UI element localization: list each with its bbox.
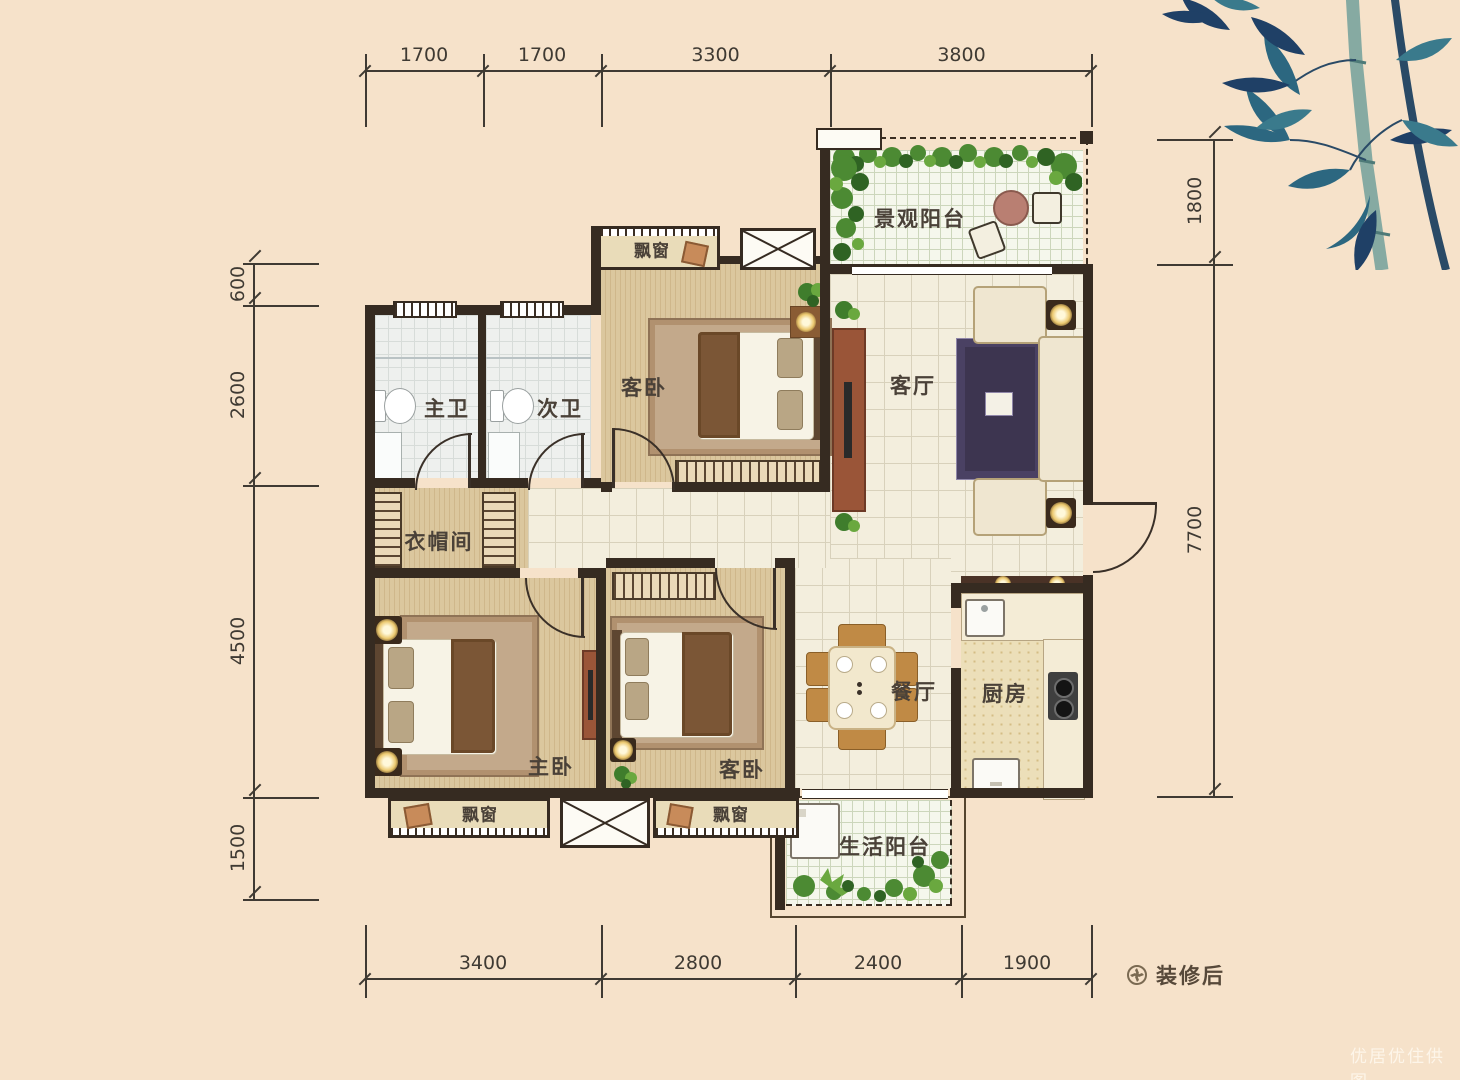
wall [365, 788, 800, 798]
balcony-railing [880, 137, 1086, 139]
room-label-bay-guest: 飘窗 [713, 801, 749, 826]
wall [365, 305, 375, 798]
floor-lamp [1046, 498, 1076, 528]
compass-icon [1126, 964, 1148, 986]
balcony-pillar [816, 128, 882, 150]
wall [672, 482, 830, 492]
dim-tick [1157, 139, 1233, 141]
entry-door-arc [1093, 505, 1157, 573]
room-label-dining: 餐厅 [891, 676, 937, 706]
room-label-bay-top: 飘窗 [634, 237, 670, 262]
dim-tick [1157, 264, 1233, 266]
wall [785, 558, 795, 798]
bamboo-painting [1140, 0, 1460, 270]
dim-line-top: 1700 1700 3300 3800 [365, 70, 1093, 72]
floor-plan: 景观阳台 主卫 次卫 客卧 客厅 衣帽间 主卧 客卧 餐厅 厨房 飘窗 飘窗 飘… [0, 0, 1460, 1080]
armchair [973, 478, 1047, 536]
dim-value: 1800 [1184, 177, 1206, 225]
dim-line-right: 1800 7700 [1213, 139, 1215, 798]
dim-value: 3800 [830, 44, 1093, 66]
room-label-view-balcony: 景观阳台 [874, 203, 966, 233]
bath-window [500, 301, 564, 318]
wall [365, 568, 520, 578]
shower-glass [375, 357, 478, 359]
watermark: 优居优住供图 [1350, 1042, 1460, 1080]
bed-guest-top [655, 330, 820, 440]
legend-label: 装修后 [1156, 960, 1225, 990]
shower-tray [488, 432, 520, 480]
wall [951, 583, 1083, 593]
room-label-second-bath: 次卫 [537, 393, 583, 423]
dim-line-left: 600 2600 4500 1500 [253, 263, 255, 901]
wall [601, 482, 612, 492]
dim-value: 1500 [227, 824, 249, 872]
dim-value: 3400 [365, 952, 601, 974]
life-balcony-railing [950, 800, 952, 904]
wall [1083, 264, 1093, 505]
dim-tick [243, 305, 319, 307]
wall [951, 583, 961, 608]
tv-console [832, 328, 866, 512]
nightstand-lamp [372, 616, 402, 644]
dim-value: 1700 [365, 44, 483, 66]
dining-table [828, 646, 896, 730]
dim-tick [243, 485, 319, 487]
dim-value: 2600 [227, 371, 249, 419]
railing-post [1080, 131, 1093, 144]
balcony-railing [1086, 139, 1088, 264]
shower-glass [486, 357, 591, 359]
ac-platform [560, 798, 650, 848]
dim-tick [243, 263, 319, 265]
wall [606, 558, 715, 568]
nightstand-lamp [610, 738, 636, 762]
room-label-master-bath: 主卫 [424, 393, 470, 423]
room-label-life-balcony: 生活阳台 [839, 831, 931, 861]
plant-icon [830, 508, 864, 540]
room-label-guest-bed-top: 客卧 [621, 372, 667, 402]
plant-icon [612, 762, 640, 790]
dim-value: 2400 [795, 952, 961, 974]
room-label-bay-master: 飘窗 [462, 801, 498, 826]
bath-window [393, 301, 457, 318]
dim-line-bottom: 3400 2800 2400 1900 [365, 978, 1093, 980]
dim-value: 1900 [961, 952, 1093, 974]
coffee-table [985, 392, 1013, 416]
wall [470, 478, 528, 488]
dim-value: 1700 [483, 44, 601, 66]
dim-value: 2800 [601, 952, 795, 974]
legend: 装修后 [1126, 960, 1225, 990]
dim-tick [1157, 796, 1233, 798]
room-label-cloakroom: 衣帽间 [405, 526, 474, 556]
dim-value: 3300 [601, 44, 830, 66]
dim-value: 4500 [227, 617, 249, 665]
floor-lamp [1046, 300, 1076, 330]
wardrobe [612, 572, 716, 600]
wardrobe [482, 492, 516, 568]
life-balcony-railing [786, 904, 952, 906]
room-label-kitchen: 厨房 [982, 678, 1028, 708]
stove-icon [1048, 672, 1078, 720]
life-balcony-door [802, 789, 948, 799]
wall [478, 315, 486, 478]
wall [596, 568, 606, 798]
room-label-living: 客厅 [890, 370, 936, 400]
dim-value: 600 [227, 266, 249, 302]
nightstand [790, 306, 822, 338]
kitchen-sink [965, 599, 1005, 637]
wall [365, 478, 415, 488]
dim-tick [243, 899, 319, 901]
bed-guest-bottom [612, 630, 732, 738]
wall [583, 478, 601, 488]
wall [578, 568, 596, 578]
wall [951, 668, 961, 798]
wall [820, 139, 830, 264]
hall-floor [528, 488, 830, 568]
dim-tick [243, 797, 319, 799]
wall [820, 264, 830, 492]
duct-shaft [740, 228, 816, 270]
plant-icon [830, 296, 864, 328]
room-label-master-bed: 主卧 [528, 751, 574, 781]
bed-master [375, 635, 503, 757]
balcony-door-window [852, 266, 1052, 275]
room-label-guest-bed-bottom: 客卧 [719, 754, 765, 784]
dim-value: 7700 [1184, 506, 1206, 554]
wall [950, 788, 1093, 798]
armchair [973, 286, 1047, 344]
wall [1083, 575, 1093, 798]
nightstand-lamp [372, 748, 402, 776]
